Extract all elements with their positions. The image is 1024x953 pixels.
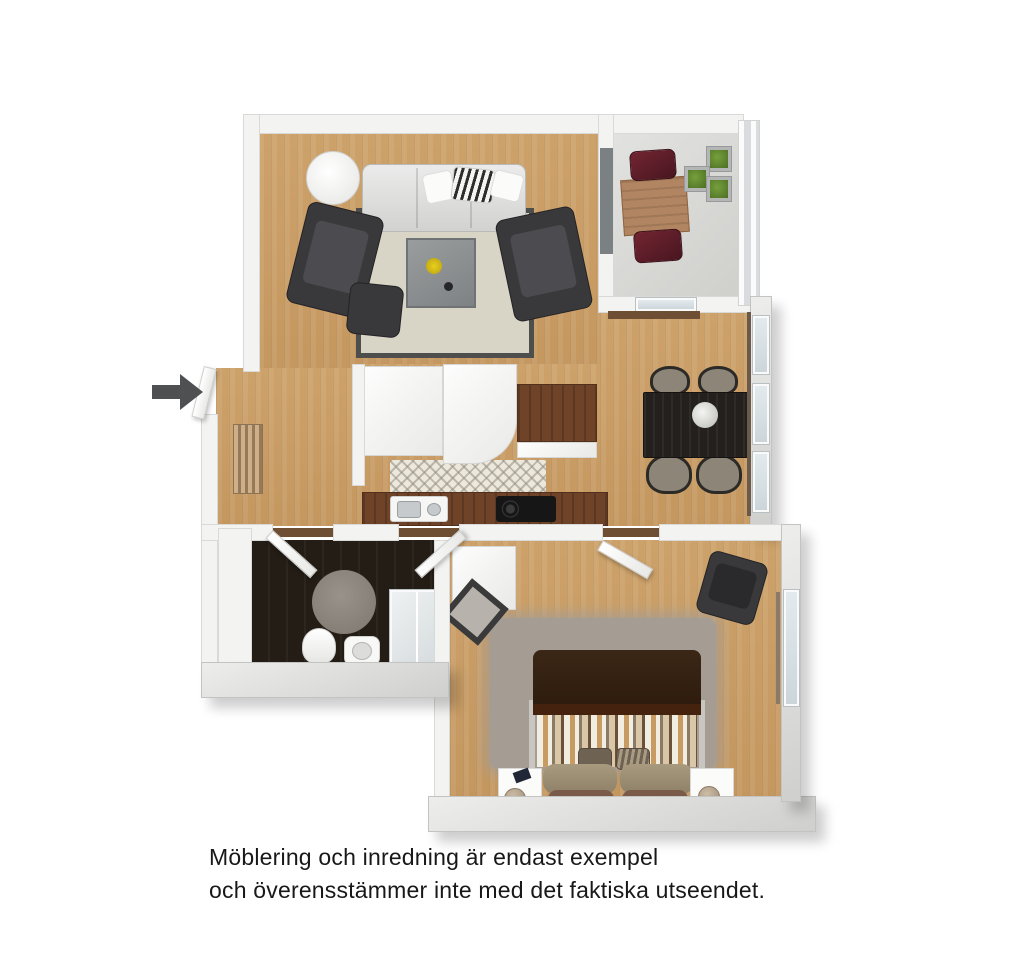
bedroom-threshold [603, 528, 659, 537]
plant [710, 150, 728, 168]
bathroom-threshold [399, 528, 459, 537]
wall-mid-b [333, 524, 399, 541]
dining-window [753, 384, 769, 444]
bathroom-threshold [273, 528, 333, 537]
bathroom-rug [312, 570, 376, 634]
balcony-chair [633, 228, 683, 263]
dining-window [753, 316, 769, 374]
leaning-mirror [447, 582, 505, 646]
entrance-arrow-head [180, 374, 203, 410]
shower-glass-seam [416, 592, 418, 662]
bedroom-window [784, 590, 799, 706]
bottle-decor [444, 282, 453, 291]
toilet [302, 628, 336, 664]
kitchen-corner-cabinet [443, 364, 517, 464]
planter-box [706, 176, 732, 202]
cooktop [496, 496, 556, 522]
kitchen-sink [390, 496, 448, 522]
wall-mid-c [459, 524, 603, 541]
caption: Möblering och inredning är endast exempe… [209, 841, 849, 907]
dining-chair [696, 454, 742, 494]
entrance-arrow-shaft [152, 385, 180, 399]
armchair-cushion [707, 562, 758, 610]
wall-kitchen-hall [352, 364, 365, 486]
dining-chair [646, 454, 692, 494]
bathroom-shaft [218, 528, 252, 664]
plant [710, 180, 728, 198]
kitchen-counter-peninsula [517, 384, 597, 442]
balcony-door-glass [636, 298, 696, 311]
sink-bowl [352, 642, 372, 660]
sink-basin [427, 503, 441, 516]
bed-blanket-fold [533, 704, 701, 715]
bedroom-window-radiator [776, 592, 780, 704]
mirror-glass [441, 578, 509, 646]
bed-blanket [533, 650, 701, 712]
balcony-chair [629, 148, 677, 181]
wall-left-hall [201, 414, 218, 668]
sofa-seam [416, 168, 418, 229]
kitchen-cabinet [363, 366, 443, 456]
caption-line-1: Möblering och inredning är endast exempe… [209, 841, 849, 874]
balcony-table [620, 176, 690, 236]
wall-top [243, 114, 744, 134]
coffee-table [406, 238, 476, 308]
ottoman [345, 281, 404, 338]
radiator [233, 424, 263, 494]
sink-basin [397, 501, 421, 518]
wall-bedroom-bottom [428, 796, 816, 832]
armchair-cushion [509, 224, 577, 298]
entrance-arrow [152, 374, 204, 410]
floor-lamp [306, 151, 360, 205]
window-sill-dining [747, 312, 751, 516]
striped-throw-pillow [450, 166, 495, 204]
wall-bathroom-bottom [201, 662, 449, 698]
kitchen-runner-rug [390, 460, 546, 496]
caption-line-2: och överensstämmer inte med det faktiska… [209, 874, 849, 907]
wall-mid-d [659, 524, 784, 541]
dining-window [753, 452, 769, 512]
wall-left-living [243, 114, 260, 372]
flower-decor [426, 258, 442, 274]
plant [688, 170, 706, 188]
kitchen-cabinet-base [517, 442, 597, 458]
balcony-threshold [608, 311, 700, 319]
balcony-glass-panel [600, 148, 613, 254]
flower-centerpiece [692, 402, 718, 428]
balcony-railing [738, 120, 760, 306]
